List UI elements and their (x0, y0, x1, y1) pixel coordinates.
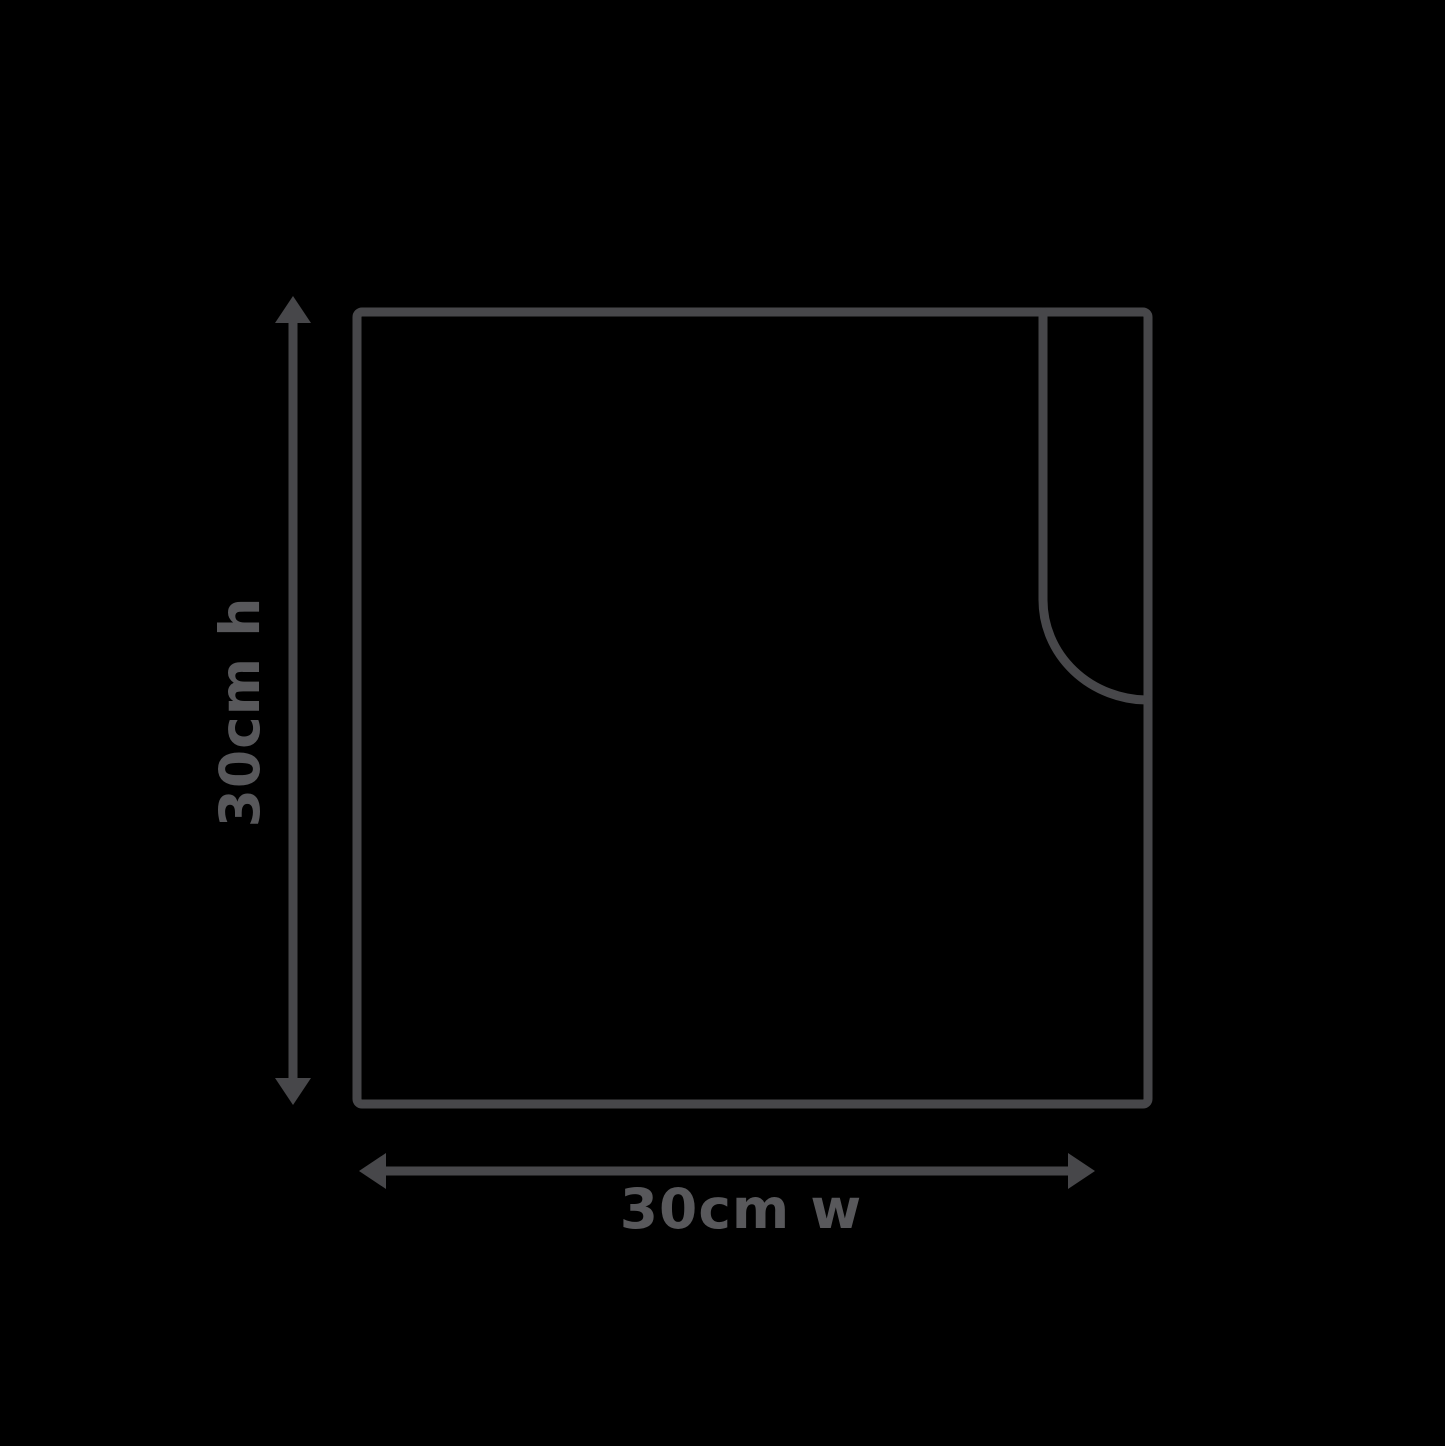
corner-notch-curve (1043, 312, 1148, 700)
dimension-diagram: 30cm h 30cm w (0, 0, 1445, 1446)
arrow-up-icon (275, 296, 311, 323)
height-label: 30cm h (208, 597, 272, 828)
square-outline (357, 312, 1148, 1104)
arrow-down-icon (275, 1078, 311, 1105)
width-label: 30cm w (620, 1177, 862, 1241)
arrow-left-icon (359, 1153, 386, 1189)
diagram-canvas: 30cm h 30cm w (0, 0, 1445, 1446)
arrow-right-icon (1068, 1153, 1095, 1189)
height-dimension-arrow (275, 296, 311, 1105)
